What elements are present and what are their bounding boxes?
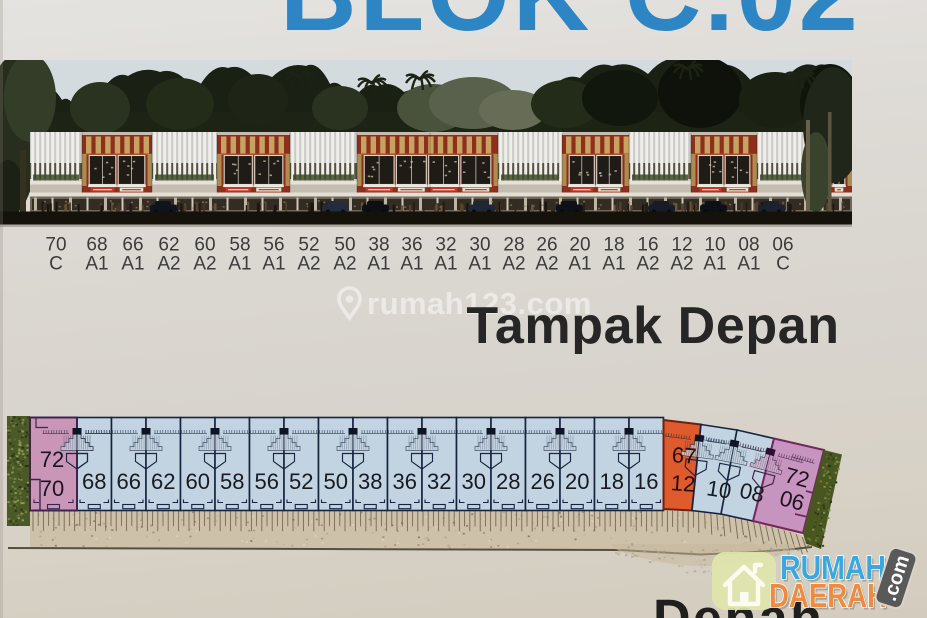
svg-text:A1: A1 <box>121 254 144 275</box>
svg-text:A2: A2 <box>157 254 180 275</box>
svg-text:C: C <box>49 254 63 275</box>
svg-text:66: 66 <box>117 469 141 494</box>
svg-text:50: 50 <box>324 469 348 494</box>
svg-text:58: 58 <box>229 235 250 256</box>
svg-text:20: 20 <box>569 235 590 256</box>
svg-text:52: 52 <box>289 469 313 494</box>
svg-text:70: 70 <box>40 476 64 501</box>
svg-text:66: 66 <box>122 235 143 256</box>
svg-text:38: 38 <box>368 235 389 256</box>
svg-text:A2: A2 <box>636 254 659 275</box>
svg-text:32: 32 <box>435 235 456 256</box>
svg-text:50: 50 <box>334 235 355 256</box>
svg-text:20: 20 <box>565 469 589 494</box>
svg-text:C: C <box>776 254 790 275</box>
svg-text:70: 70 <box>45 235 66 256</box>
svg-text:A1: A1 <box>602 254 625 275</box>
svg-text:A1: A1 <box>400 254 423 275</box>
svg-text:30: 30 <box>469 235 490 256</box>
svg-text:62: 62 <box>158 235 179 256</box>
svg-text:A1: A1 <box>367 254 390 275</box>
svg-text:08: 08 <box>738 235 759 256</box>
svg-text:A1: A1 <box>737 254 760 275</box>
svg-text:62: 62 <box>151 469 175 494</box>
svg-text:28: 28 <box>503 235 524 256</box>
svg-text:A1: A1 <box>468 254 491 275</box>
svg-text:A1: A1 <box>228 254 251 275</box>
svg-text:A2: A2 <box>502 254 525 275</box>
svg-text:A1: A1 <box>568 254 591 275</box>
svg-text:Tampak Depan: Tampak Depan <box>466 297 839 355</box>
svg-text:72: 72 <box>40 447 64 472</box>
svg-text:A1: A1 <box>85 254 108 275</box>
svg-text:26: 26 <box>531 469 555 494</box>
svg-text:06: 06 <box>772 235 793 256</box>
svg-text:52: 52 <box>298 235 319 256</box>
svg-text:68: 68 <box>86 235 107 256</box>
svg-text:18: 18 <box>600 469 624 494</box>
svg-text:30: 30 <box>462 469 486 494</box>
svg-text:38: 38 <box>358 469 382 494</box>
svg-text:28: 28 <box>496 469 520 494</box>
svg-text:58: 58 <box>220 469 244 494</box>
svg-text:A2: A2 <box>193 254 216 275</box>
svg-text:A1: A1 <box>262 254 285 275</box>
svg-text:67: 67 <box>671 442 697 469</box>
svg-text:A2: A2 <box>297 254 320 275</box>
svg-text:A1: A1 <box>434 254 457 275</box>
svg-text:26: 26 <box>536 235 557 256</box>
svg-text:A2: A2 <box>333 254 356 275</box>
svg-text:32: 32 <box>427 469 451 494</box>
svg-text:36: 36 <box>401 235 422 256</box>
svg-text:68: 68 <box>82 469 106 494</box>
svg-text:56: 56 <box>263 235 284 256</box>
svg-text:16: 16 <box>634 469 658 494</box>
svg-text:A2: A2 <box>535 254 558 275</box>
svg-text:12: 12 <box>670 470 696 497</box>
svg-text:16: 16 <box>637 235 658 256</box>
svg-text:60: 60 <box>194 235 215 256</box>
svg-text:12: 12 <box>671 235 692 256</box>
svg-text:36: 36 <box>393 469 417 494</box>
svg-text:DAERAH: DAERAH <box>769 577 887 614</box>
svg-text:18: 18 <box>603 235 624 256</box>
svg-text:56: 56 <box>255 469 279 494</box>
svg-text:60: 60 <box>186 469 210 494</box>
svg-text:A2: A2 <box>670 254 693 275</box>
svg-text:10: 10 <box>704 235 725 256</box>
svg-text:10: 10 <box>705 475 733 504</box>
svg-text:A1: A1 <box>703 254 726 275</box>
